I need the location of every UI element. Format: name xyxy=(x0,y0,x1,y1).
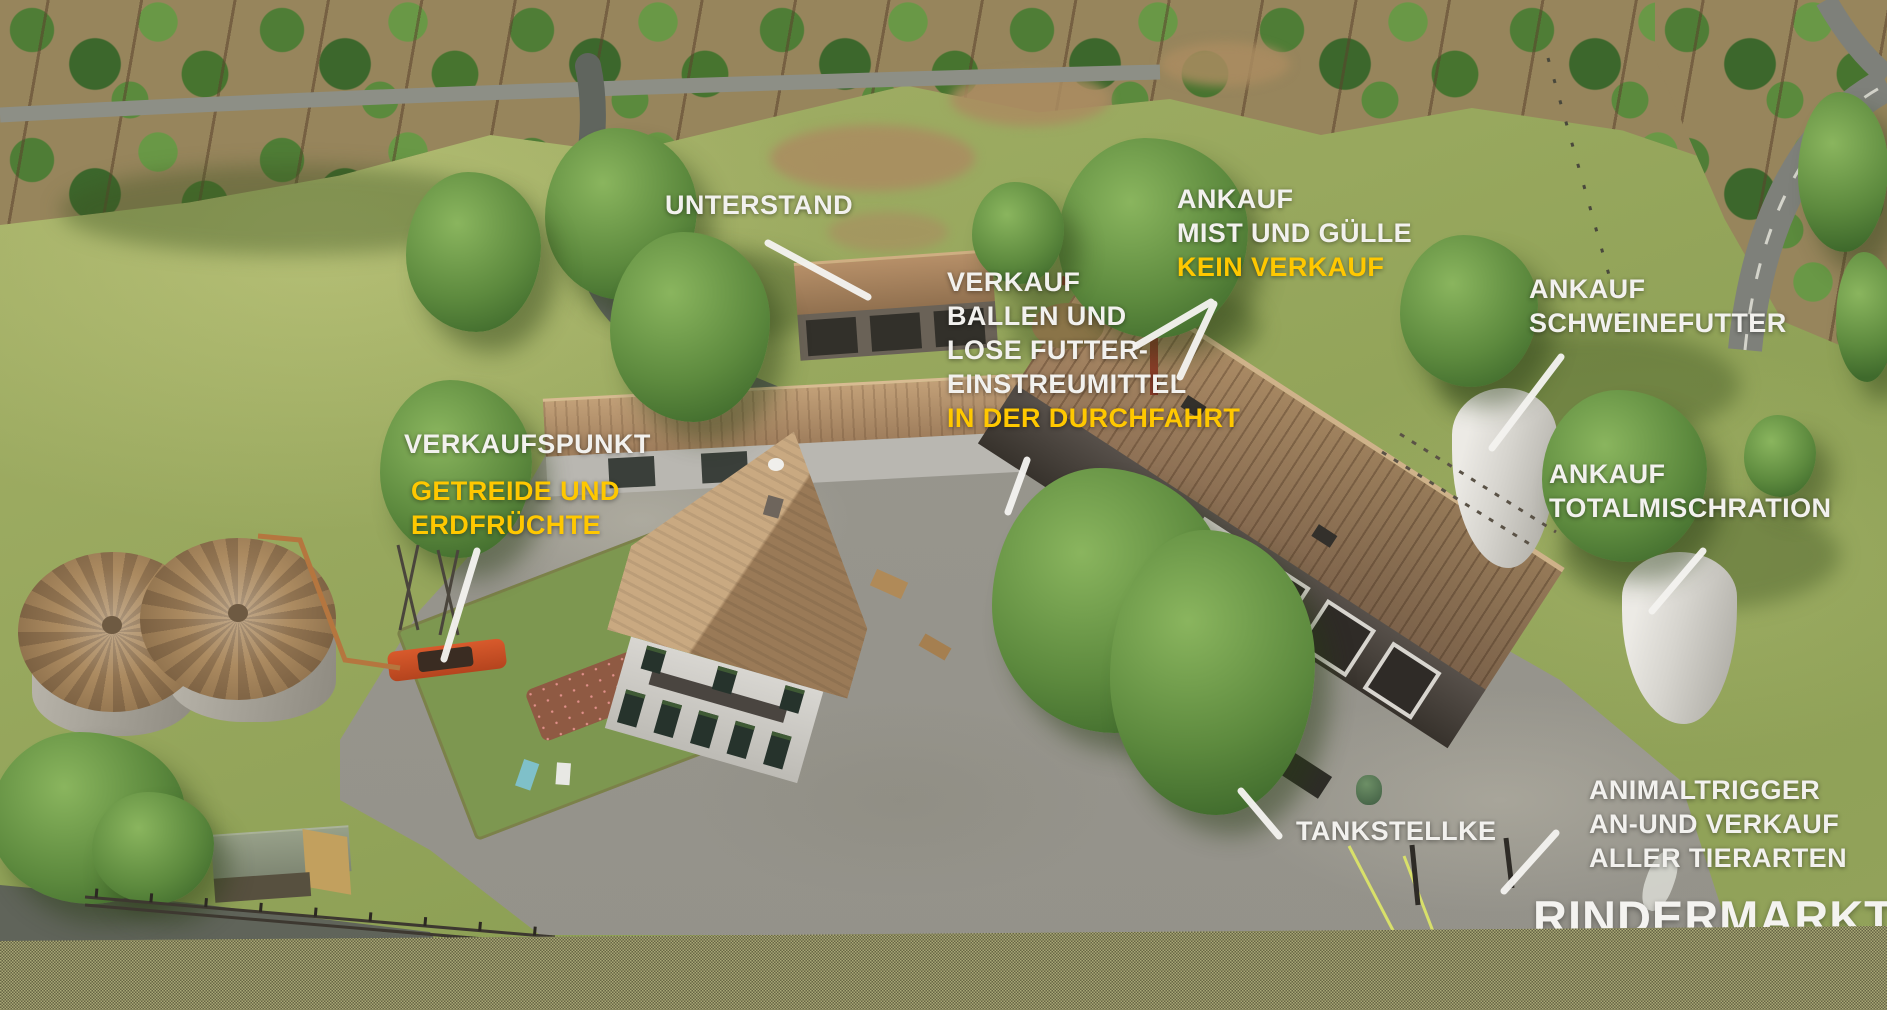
pointer-durchfahrt xyxy=(1008,460,1027,512)
pointer-tankstelle xyxy=(1241,791,1279,836)
pointer-verkaufspunkt xyxy=(444,551,477,659)
pointer-animaltrigger xyxy=(1504,833,1556,891)
pointer-unterstand xyxy=(768,243,868,297)
annotation-pointer-lines xyxy=(0,0,1887,1010)
game-screenshot-root: UNTERSTAND ANKAUF MIST UND GÜLLE KEIN VE… xyxy=(0,0,1887,1010)
pointer-schweinefutter xyxy=(1492,357,1561,448)
pointer-totalmischration xyxy=(1652,551,1703,611)
